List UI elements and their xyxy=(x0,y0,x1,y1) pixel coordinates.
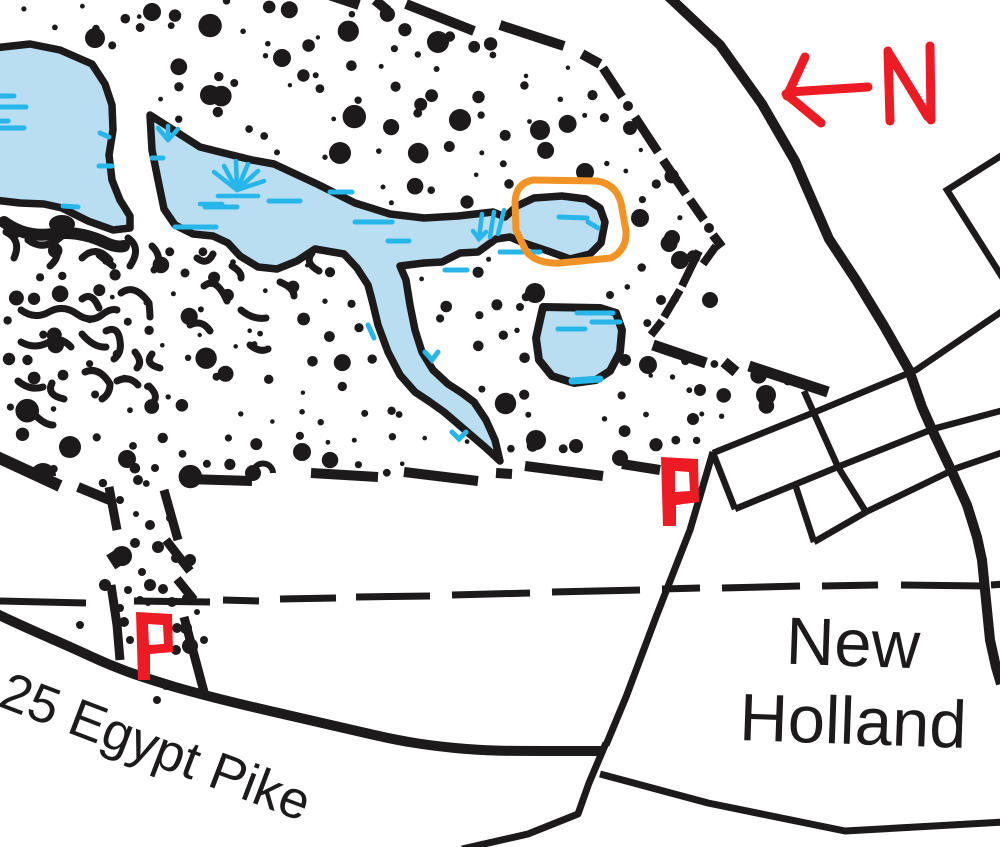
svg-text:Holland: Holland xyxy=(738,680,968,763)
svg-text:New: New xyxy=(785,604,922,684)
